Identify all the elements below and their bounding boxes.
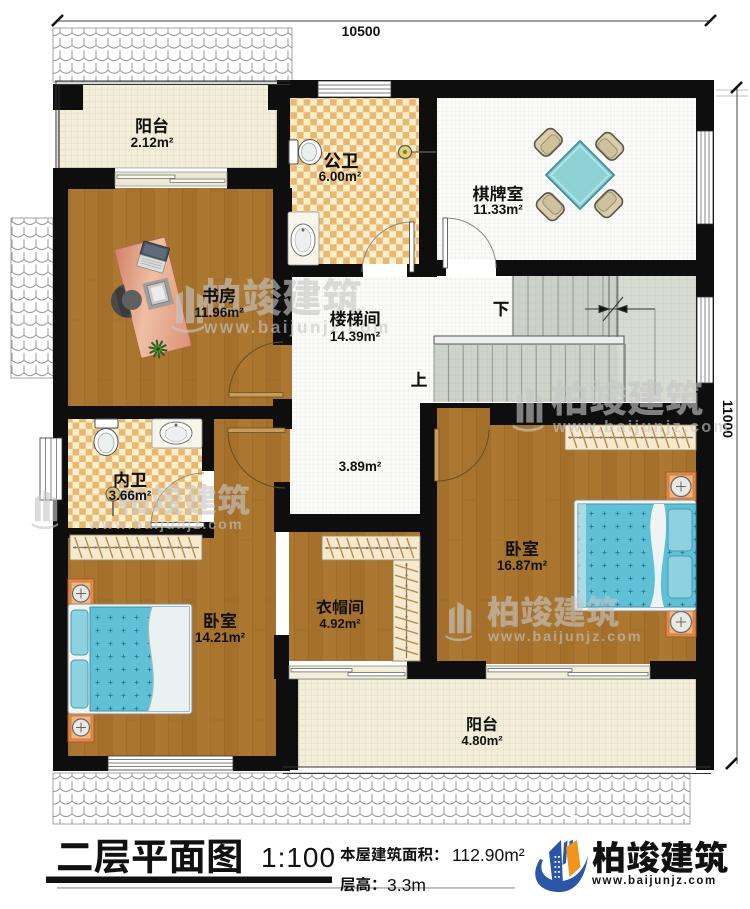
svg-text:14.21m²: 14.21m² <box>195 630 246 645</box>
svg-text:www.baijunjz.com: www.baijunjz.com <box>487 629 642 645</box>
svg-text:112.90m²: 112.90m² <box>452 845 525 865</box>
svg-text:www.baijunjz.com: www.baijunjz.com <box>88 517 243 533</box>
svg-text:4.80m²: 4.80m² <box>461 733 503 748</box>
svg-text:4.92m²: 4.92m² <box>319 616 361 631</box>
svg-text:www.baijunjz.com: www.baijunjz.com <box>591 875 717 887</box>
svg-text:10500: 10500 <box>342 23 381 39</box>
svg-text:www.baijunjz.com: www.baijunjz.com <box>552 418 730 436</box>
svg-text:14.39m²: 14.39m² <box>330 329 381 344</box>
svg-text:3.89m²: 3.89m² <box>339 459 382 474</box>
svg-text:3.3m: 3.3m <box>387 875 426 895</box>
svg-text:16.87m²: 16.87m² <box>497 558 548 573</box>
svg-text:11.96m²: 11.96m² <box>194 305 244 320</box>
svg-text:11.33m²: 11.33m² <box>473 202 523 217</box>
svg-text:1:100: 1:100 <box>261 842 336 873</box>
svg-text:6.00m²: 6.00m² <box>319 169 362 184</box>
svg-text:2.12m²: 2.12m² <box>131 135 174 150</box>
svg-text:3.66m²: 3.66m² <box>109 488 152 503</box>
